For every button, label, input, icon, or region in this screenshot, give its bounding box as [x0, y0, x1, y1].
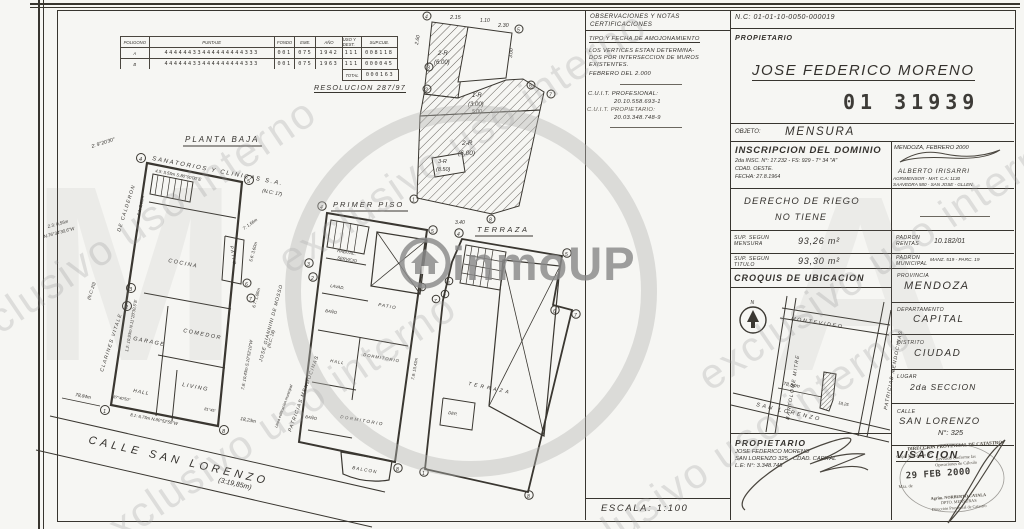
- cuit-prof-label: C.U.I.T. PROFESIONAL:: [588, 91, 658, 97]
- row-b-ano: 1963: [316, 59, 343, 69]
- puntaje-header-row: POLIGONO PUNTAJE FONDO EME. AÑO USO Y DE…: [120, 36, 398, 47]
- sup-titulo-value: 93,30 m²: [798, 256, 840, 266]
- text-layer: POLIGONO PUNTAJE FONDO EME. AÑO USO Y DE…: [0, 0, 1024, 529]
- row-b-puntaje: 44444433444444444333: [150, 59, 275, 69]
- firma-place-date: MENDOZA, FEBRERO 2000: [894, 145, 969, 151]
- owner-line1: JOSE FEDERICO MORENO: [735, 449, 809, 455]
- owner-line3: L.E: N°: 3.348.748: [735, 463, 782, 469]
- propietario-name: JOSE FEDERICO MORENO: [752, 62, 975, 81]
- cuit-prof-value: 20.10.558.693-1: [614, 99, 661, 105]
- notes-body-3: EXISTENTES.: [589, 62, 629, 68]
- row-a-sup: 008118: [362, 48, 397, 58]
- departamento-label: DEPARTAMENTO: [897, 307, 944, 313]
- calle-label: CALLE: [897, 409, 915, 415]
- provincia-value: MENDOZA: [904, 280, 970, 292]
- distrito-label: DISTRITO: [897, 340, 924, 346]
- firma-address: SAAVEDRA 580 - SAN JOSE - GLLEN.: [893, 182, 974, 187]
- inscripcion-line3: FECHA: 27.8.1964: [735, 174, 780, 180]
- row-b-poligono: B: [121, 59, 150, 69]
- row-a-uso: 111: [343, 48, 362, 58]
- inscripcion-line1: 2da INSC. N°: 17.232 - FS: 929 - T° 34 "…: [735, 158, 837, 164]
- row-a-eme: 075: [295, 48, 316, 58]
- provincia-label: PROVINCIA: [897, 273, 929, 279]
- puntaje-table: POLIGONO PUNTAJE FONDO EME. AÑO USO Y DE…: [120, 36, 398, 69]
- calle-value: SAN LORENZO: [899, 416, 980, 427]
- row-a-ano: 1942: [316, 48, 343, 58]
- croquis-title: CROQUIS DE UBICACION: [734, 273, 865, 283]
- puntaje-row-a: A 44444433444444444333 001 075 1942 111 …: [120, 47, 398, 58]
- riego-value: NO TIENE: [775, 212, 827, 222]
- scanned-survey-sheet: POLIGONO PUNTAJE FONDO EME. AÑO USO Y DE…: [0, 0, 1024, 529]
- sup-mensura-value: 93,26 m²: [798, 236, 840, 246]
- padron-rentas-value: 10.182/01: [934, 238, 965, 245]
- row-a-fondo: 001: [275, 48, 296, 58]
- col-poligono: POLIGONO: [121, 37, 150, 47]
- row-b-eme: 075: [295, 59, 316, 69]
- puntaje-row-b: B 44444433444444444333 001 075 1963 111 …: [120, 58, 398, 69]
- col-puntaje: PUNTAJE: [150, 37, 275, 47]
- col-supcub: SUP.CUB.: [362, 37, 397, 47]
- inscripcion-title: INSCRIPCION DEL DOMINIO: [735, 145, 881, 156]
- objeto-value: MENSURA: [785, 126, 855, 138]
- row-b-sup: 000045: [362, 59, 397, 69]
- cuit-prop-value: 20.03.348.748-9: [614, 115, 661, 121]
- cuit-prop-label: C.U.I.T. PROPIETARIO:: [587, 107, 655, 113]
- distrito-value: CIUDAD: [914, 348, 961, 359]
- notes-header-2: CERTIFICACIONES: [590, 21, 652, 28]
- resolucion-label: RESOLUCION 287/97: [314, 83, 406, 93]
- riego-label: DERECHO DE RIEGO: [744, 196, 860, 207]
- row-a-puntaje: 44444433444444444333: [150, 48, 275, 58]
- row-b-fondo: 001: [275, 59, 296, 69]
- total-value: 000163: [362, 70, 398, 80]
- owner-label: PROPIETARIO: [735, 438, 806, 448]
- padron-municipal-value: MANZ. 519 - PARC. 19: [930, 258, 980, 263]
- notes-body-1: LOS VERTICES ESTAN DETERMINA-: [589, 48, 694, 54]
- notes-fecha: FEBRERO DEL 2.000: [589, 71, 651, 77]
- padron-municipal-label2: MUNICIPAL: [896, 261, 927, 267]
- col-eme: EME.: [295, 37, 316, 47]
- tipo-fecha-title: TIPO Y FECHA DE AMOJONAMIENTO: [589, 36, 700, 43]
- calle-nro: N°: 325: [938, 428, 963, 437]
- sup-mensura-label2: MENSURA: [734, 241, 763, 247]
- lugar-value: 2da SECCION: [910, 382, 976, 392]
- escala-label: ESCALA: 1:100: [601, 503, 688, 514]
- objeto-label: OBJETO:: [735, 129, 761, 135]
- owner-line2: SAN LORENZO 325 - CDAD. CAPITAL: [735, 456, 836, 462]
- puntaje-total-row: TOTAL 000163: [342, 69, 399, 81]
- row-b-uso: 111: [343, 59, 362, 69]
- catastro-stamp: DIRECCION PROVINCIAL DE CATASTRO Copia N…: [896, 440, 1018, 514]
- inscripcion-line2: CDAD. OESTE.: [735, 166, 773, 172]
- firma-title: AGRIMENSOR - MAT. C.A: 1130: [893, 176, 960, 181]
- col-uso: USO Y DEST.: [343, 37, 362, 47]
- sup-titulo-label2: TITULO: [734, 262, 755, 268]
- propietario-label: PROPIETARIO: [735, 33, 793, 42]
- departamento-value: CAPITAL: [913, 314, 964, 325]
- total-label: TOTAL: [343, 70, 362, 80]
- notes-header-1: OBSERVACIONES Y NOTAS: [590, 13, 680, 20]
- col-ano: AÑO: [316, 37, 343, 47]
- row-a-poligono: A: [121, 48, 150, 58]
- notes-body-2: DOS POR INTERSECCION DE MUROS: [589, 55, 699, 61]
- col-fondo: FONDO: [275, 37, 296, 47]
- lugar-label: LUGAR: [897, 374, 917, 380]
- nomenclatura-catastral: N.C: 01-01-10-0050-000019: [735, 14, 835, 21]
- padron-rentas-label2: RENTAS: [896, 241, 919, 247]
- expediente-number-stamp: 01 31939: [843, 90, 979, 114]
- firma-name: ALBERTO IRISARRI: [898, 168, 970, 175]
